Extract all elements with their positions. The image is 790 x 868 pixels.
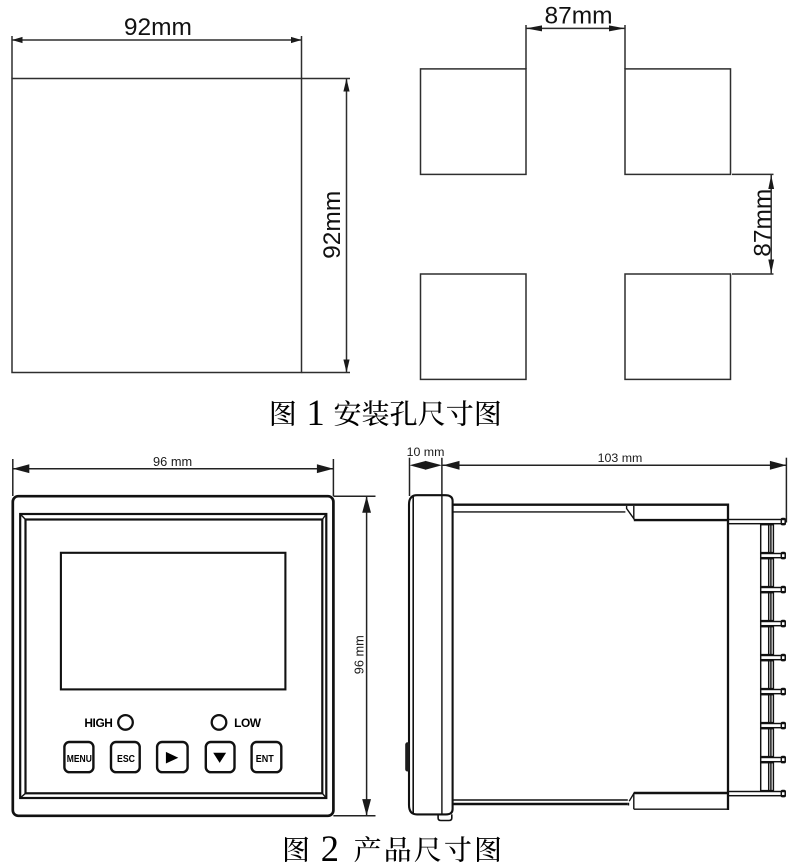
svg-text:87mm: 87mm [544, 2, 612, 29]
svg-text:ENT: ENT [256, 754, 275, 765]
svg-text:92mm: 92mm [319, 191, 346, 259]
svg-text:2: 2 [321, 828, 339, 868]
svg-text:87mm: 87mm [749, 189, 776, 257]
svg-text:ESC: ESC [117, 754, 136, 765]
svg-text:LOW: LOW [234, 716, 262, 730]
svg-text:MENU: MENU [67, 753, 92, 765]
svg-text:10 mm: 10 mm [407, 445, 445, 459]
svg-text:96 mm: 96 mm [153, 454, 192, 469]
svg-text:1: 1 [307, 392, 325, 433]
svg-text:92mm: 92mm [124, 14, 192, 41]
svg-text:96 mm: 96 mm [351, 635, 366, 674]
svg-text:103 mm: 103 mm [598, 451, 643, 465]
svg-text:HIGH: HIGH [84, 716, 112, 730]
